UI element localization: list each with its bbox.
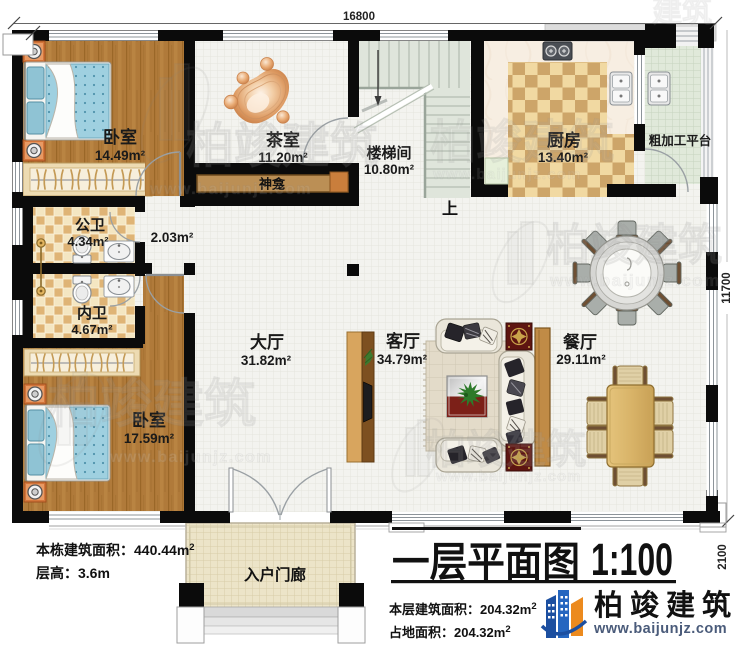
svg-text:16800: 16800 (343, 11, 375, 23)
svg-text:34.79m²: 34.79m² (377, 352, 428, 367)
svg-text:一层平面图: 一层平面图 (392, 539, 580, 585)
svg-text:www.baijunjz.com: www.baijunjz.com (435, 468, 581, 485)
svg-text:占地面积：204.32m2: 占地面积：204.32m2 (389, 624, 511, 640)
svg-text:粗加工平台: 粗加工平台 (649, 133, 712, 148)
svg-text:大厅: 大厅 (250, 332, 284, 352)
svg-text:4.34m²: 4.34m² (67, 234, 109, 249)
svg-text:www.baijunjz.com: www.baijunjz.com (549, 271, 721, 290)
svg-text:11700: 11700 (721, 272, 733, 303)
svg-text:柏竣建筑: 柏竣建筑 (594, 588, 738, 622)
svg-text:建筑: 建筑 (652, 0, 712, 29)
svg-text:上: 上 (442, 200, 458, 218)
svg-text:柏竣建筑: 柏竣建筑 (430, 116, 614, 168)
svg-text:14.49m²: 14.49m² (95, 148, 146, 163)
svg-text:公卫: 公卫 (75, 217, 105, 234)
svg-text:www.baijunjz.com: www.baijunjz.com (149, 181, 312, 198)
svg-text:餐厅: 餐厅 (563, 332, 597, 352)
svg-text:4.67m²: 4.67m² (71, 322, 113, 337)
svg-text:本栋建筑面积：440.44m2: 本栋建筑面积：440.44m2 (36, 542, 195, 558)
svg-text:www.baijunjz.com: www.baijunjz.com (432, 166, 582, 183)
svg-text:柏竣建筑: 柏竣建筑 (426, 428, 586, 472)
svg-text:www.baijunjz.com: www.baijunjz.com (109, 449, 272, 466)
svg-text:本层建筑面积：204.32m2: 本层建筑面积：204.32m2 (389, 601, 537, 617)
svg-text:卧室: 卧室 (103, 127, 137, 147)
svg-text:31.82m²: 31.82m² (241, 353, 292, 368)
svg-text:29.11m²: 29.11m² (556, 352, 606, 367)
svg-text:2100: 2100 (717, 544, 729, 570)
svg-text:内卫: 内卫 (77, 304, 107, 322)
svg-text:柏竣建筑: 柏竣建筑 (186, 120, 378, 173)
svg-text:1:100: 1:100 (591, 534, 673, 585)
svg-text:客厅: 客厅 (385, 331, 420, 351)
svg-text:入户门廊: 入户门廊 (244, 565, 307, 584)
svg-text:层高：3.6m: 层高：3.6m (36, 565, 110, 581)
svg-text:2.03m²: 2.03m² (151, 230, 194, 245)
svg-text:柏竣建筑: 柏竣建筑 (546, 221, 722, 270)
svg-text:www.baijunjz.com: www.baijunjz.com (593, 621, 727, 637)
svg-text:柏竣建筑: 柏竣建筑 (48, 376, 256, 434)
